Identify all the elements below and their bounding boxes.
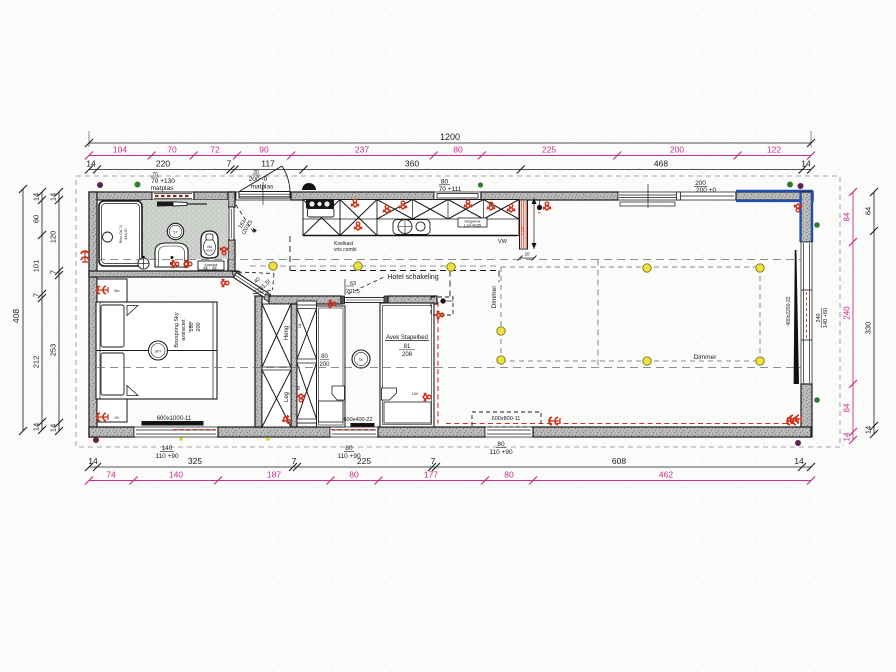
svg-text:7: 7	[431, 456, 436, 466]
svg-text:Riho DA 74: Riho DA 74	[119, 225, 123, 243]
svg-text:Dimmer: Dimmer	[491, 285, 498, 309]
svg-text:70 +130: 70 +130	[151, 178, 175, 185]
svg-text:14: 14	[864, 426, 873, 434]
svg-text:7: 7	[227, 159, 232, 169]
svg-text:122: 122	[767, 145, 781, 155]
svg-text:74: 74	[106, 470, 116, 480]
svg-text:237: 237	[355, 145, 369, 155]
svg-text:110 +90: 110 +90	[489, 449, 513, 456]
svg-text:SKY: SKY	[155, 350, 163, 354]
svg-text:600x400-22: 600x400-22	[343, 417, 372, 423]
svg-text:330: 330	[864, 322, 873, 335]
svg-text:36x: 36x	[114, 289, 120, 293]
svg-text:360: 360	[405, 159, 419, 169]
svg-text:80: 80	[453, 145, 463, 155]
svg-text:7: 7	[292, 456, 297, 466]
svg-text:63: 63	[296, 385, 301, 390]
svg-text:101: 101	[32, 260, 41, 273]
svg-text:240: 240	[843, 306, 852, 320]
svg-text:600x800-11: 600x800-11	[492, 416, 521, 422]
svg-text:462: 462	[659, 470, 673, 480]
svg-text:14: 14	[49, 193, 58, 201]
svg-text:90: 90	[259, 145, 269, 155]
svg-text:VW: VW	[498, 239, 508, 245]
svg-text:matplas: matplas	[251, 184, 275, 191]
svg-text:60: 60	[32, 215, 41, 223]
svg-text:40x47: 40x47	[205, 249, 214, 253]
svg-text:117: 117	[261, 159, 275, 169]
svg-text:468: 468	[654, 159, 668, 169]
svg-text:110 +90: 110 +90	[155, 453, 179, 460]
svg-text:200: 200	[670, 145, 684, 155]
svg-text:57: 57	[173, 230, 178, 235]
svg-text:L19-4035: L19-4035	[464, 223, 482, 228]
svg-text:7: 7	[49, 270, 58, 274]
svg-text:14: 14	[32, 193, 41, 201]
svg-text:antraciet: antraciet	[181, 319, 187, 341]
svg-text:Heng: Heng	[284, 326, 290, 340]
svg-text:Avek Stapelbed: Avek Stapelbed	[386, 335, 428, 341]
svg-text:7: 7	[32, 293, 41, 297]
svg-text:14: 14	[794, 456, 804, 466]
svg-text:140: 140	[169, 470, 183, 480]
svg-text:200: 200	[196, 322, 202, 331]
svg-text:608: 608	[612, 456, 626, 466]
svg-text:140 +60: 140 +60	[823, 308, 829, 328]
svg-text:80: 80	[504, 470, 514, 480]
svg-text:104: 104	[113, 145, 127, 155]
svg-text:84: 84	[843, 403, 852, 412]
svg-text:200: 200	[695, 180, 706, 187]
svg-text:110 +90: 110 +90	[337, 453, 361, 460]
svg-text:408: 408	[11, 309, 21, 323]
svg-text:Dimmer: Dimmer	[694, 354, 718, 361]
svg-text:225: 225	[542, 145, 556, 155]
svg-text:72: 72	[210, 145, 220, 155]
svg-text:81: 81	[404, 344, 411, 350]
svg-text:200 -0: 200 -0	[249, 176, 268, 183]
svg-text:80: 80	[345, 445, 353, 452]
svg-text:400x2200-22: 400x2200-22	[786, 296, 792, 325]
svg-text:14: 14	[49, 424, 58, 432]
svg-text:70: 70	[167, 145, 177, 155]
svg-text:80: 80	[441, 179, 449, 186]
svg-text:1200: 1200	[440, 132, 460, 142]
svg-text:Leg: Leg	[284, 392, 290, 402]
svg-text:14: 14	[843, 432, 852, 441]
svg-text:vris combi: vris combi	[334, 247, 357, 253]
svg-text:64: 64	[864, 207, 873, 215]
svg-text:200 +0: 200 +0	[696, 187, 716, 194]
svg-text:115+: 115+	[412, 392, 419, 396]
svg-text:140: 140	[162, 445, 173, 452]
svg-text:80: 80	[497, 441, 505, 448]
svg-text:253: 253	[49, 344, 58, 357]
svg-text:19+: 19+	[114, 416, 120, 420]
svg-text:187: 187	[267, 470, 281, 480]
svg-text:14: 14	[86, 159, 96, 169]
svg-text:220: 220	[156, 159, 170, 169]
svg-text:20: 20	[524, 252, 530, 257]
svg-text:1.115: 1.115	[521, 227, 525, 236]
svg-text:43x130: 43x130	[124, 228, 128, 239]
svg-text:matplas: matplas	[151, 185, 175, 192]
svg-text:Hotel schakeling: Hotel schakeling	[387, 274, 438, 281]
svg-text:14: 14	[801, 159, 811, 169]
svg-text:80: 80	[349, 470, 359, 480]
svg-text:14: 14	[32, 423, 41, 431]
svg-text:84: 84	[843, 212, 852, 221]
svg-text:14: 14	[88, 456, 98, 466]
svg-text:120: 120	[49, 231, 58, 244]
svg-text:Boxspring Sky: Boxspring Sky	[174, 312, 180, 347]
svg-text:18: 18	[297, 323, 302, 328]
svg-text:177: 177	[424, 470, 438, 480]
svg-text:212: 212	[32, 356, 41, 369]
svg-text:201,5: 201,5	[346, 289, 360, 295]
svg-text:208: 208	[402, 352, 413, 358]
svg-text:Kapstok: Kapstok	[205, 263, 218, 267]
svg-text:tv: tv	[538, 210, 541, 215]
svg-text:70 +111: 70 +111	[439, 186, 462, 193]
svg-text:325: 325	[188, 456, 202, 466]
